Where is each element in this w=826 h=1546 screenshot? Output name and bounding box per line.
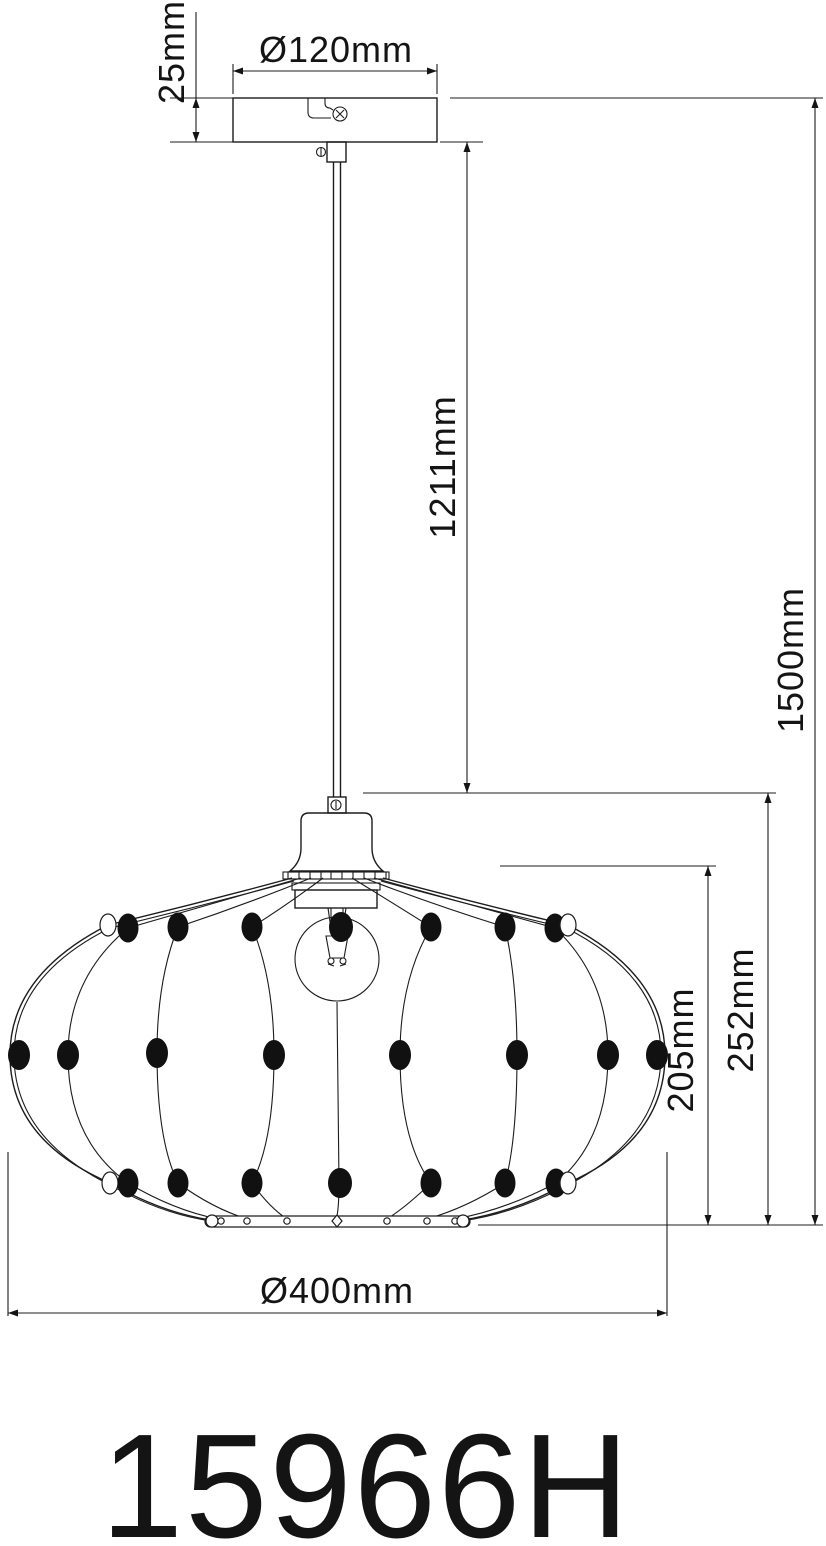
cap-screw-icon — [331, 800, 341, 810]
dimension-shade-total-height: 252mm — [363, 793, 776, 1225]
dim-label-1500mm: 1500mm — [770, 587, 811, 733]
pendant-lamp-diagram: 25mm Ø120mm 1211mm 1500mm 252mm — [0, 0, 826, 1546]
model-number-label: 15966H — [101, 1404, 631, 1546]
suspension-rod — [317, 142, 347, 813]
canopy — [233, 98, 437, 142]
dim-label-205mm: 205mm — [660, 987, 701, 1112]
dimension-rod-drop: 1211mm — [422, 142, 483, 793]
dimension-overall-height: 1500mm — [450, 98, 823, 1225]
rod-side-screw-icon — [317, 148, 326, 157]
white-bead — [102, 1172, 118, 1194]
canopy-screw-icon — [333, 107, 347, 121]
bead-row-upper — [100, 912, 576, 943]
dimension-canopy-diameter: Ø120mm — [233, 29, 437, 94]
bead-row-lower — [102, 1168, 576, 1198]
dim-label-252mm: 252mm — [720, 947, 761, 1072]
dim-label-25mm: 25mm — [151, 0, 192, 104]
bottom-ring — [205, 1215, 470, 1227]
white-bead — [100, 914, 116, 936]
shade-top-cap — [283, 813, 389, 922]
white-bead — [560, 914, 576, 936]
white-bead — [560, 1172, 576, 1194]
technical-drawing-sheet: 25mm Ø120mm 1211mm 1500mm 252mm — [0, 0, 826, 1546]
dim-label-1211mm: 1211mm — [422, 395, 463, 538]
dim-label-120mm: Ø120mm — [259, 29, 413, 70]
dim-label-400mm: Ø400mm — [260, 1270, 414, 1311]
dimension-canopy-height: 25mm — [151, 0, 233, 142]
